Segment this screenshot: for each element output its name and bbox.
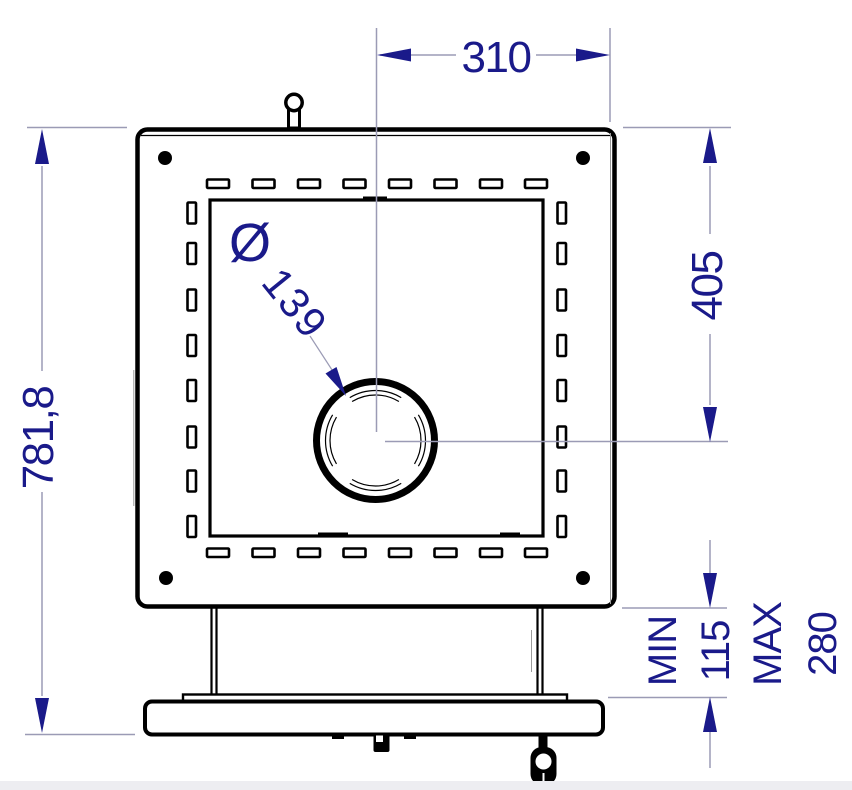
arrow-310-right-icon (576, 49, 610, 62)
under-plate-stub-left (332, 733, 344, 739)
leveling-foot-mark (543, 773, 545, 782)
vent-slot (253, 549, 275, 558)
vent-slot (344, 180, 366, 189)
panel-tab-top (363, 197, 387, 202)
vent-slot (480, 180, 502, 189)
leveling-foot-hole (536, 754, 552, 770)
vent-slot (389, 549, 411, 558)
bolt-bottom-right (576, 571, 590, 585)
vent-slot (298, 180, 320, 189)
vent-slot (558, 335, 567, 356)
vent-slot (558, 243, 567, 264)
arrow-781-up-icon (35, 129, 49, 164)
technical-drawing-canvas: 310 781,8 405 MIN 115 MAX 280 Ø 139 (0, 0, 852, 790)
machine-outline (134, 94, 615, 785)
vent-slot (188, 427, 197, 448)
vent-slot (558, 427, 567, 448)
vent-slot (558, 471, 567, 492)
bolt-top-left (158, 151, 172, 165)
vent-slot (558, 380, 567, 401)
dim-781-label: 781,8 (14, 387, 63, 490)
vent-slot (253, 180, 275, 189)
diameter-symbol-icon: Ø (229, 213, 271, 273)
arrow-310-left-icon (377, 49, 411, 62)
vent-slot (188, 203, 197, 224)
arrow-781-down-icon (35, 698, 49, 733)
vent-slot (298, 549, 320, 558)
arrow-405-down-icon (703, 407, 717, 442)
dim-310-label: 310 (462, 33, 531, 82)
bolt-bottom-left (159, 571, 173, 585)
vent-slot (558, 516, 567, 537)
vent-slot (525, 549, 547, 558)
vent-slot (188, 290, 197, 311)
vent-slot (389, 180, 411, 189)
under-plate-stub-right (404, 733, 416, 739)
vent-slot (525, 180, 547, 189)
dim-405-label: 405 (683, 252, 732, 321)
vent-slot (207, 549, 229, 558)
vent-slot (558, 290, 567, 311)
vent-slot (188, 335, 197, 356)
vent-slot (188, 516, 197, 537)
left-leg (212, 605, 217, 697)
base-plate (145, 702, 603, 735)
vent-slot (188, 380, 197, 401)
vent-slot (188, 243, 197, 264)
right-leg (538, 605, 543, 697)
dim-min-label: MIN (641, 616, 685, 686)
arrow-gap-up-icon (703, 697, 717, 732)
vent-slot (558, 203, 567, 224)
vent-slot (435, 549, 457, 558)
dim-min-value: 115 (694, 621, 738, 682)
panel-tab-bottom-left (318, 533, 348, 538)
vent-slot (207, 180, 229, 189)
arrow-gap-down-icon (703, 573, 717, 608)
front-view-drawing: 310 781,8 405 MIN 115 MAX 280 Ø 139 (0, 0, 852, 790)
vent-slot (188, 471, 197, 492)
dim-max-value: 280 (801, 612, 845, 676)
bolt-top-right (576, 151, 590, 165)
foot-tab-notch (376, 736, 383, 743)
vent-slot (435, 180, 457, 189)
knob-ring (286, 94, 302, 110)
vent-slot (480, 549, 502, 558)
arrow-405-up-icon (703, 128, 717, 163)
page-edge-strip (0, 781, 852, 790)
vent-slot (344, 549, 366, 558)
port-circle (317, 382, 435, 500)
dim-max-label: MAX (746, 602, 790, 686)
panel-tab-bottom-right (500, 533, 520, 538)
